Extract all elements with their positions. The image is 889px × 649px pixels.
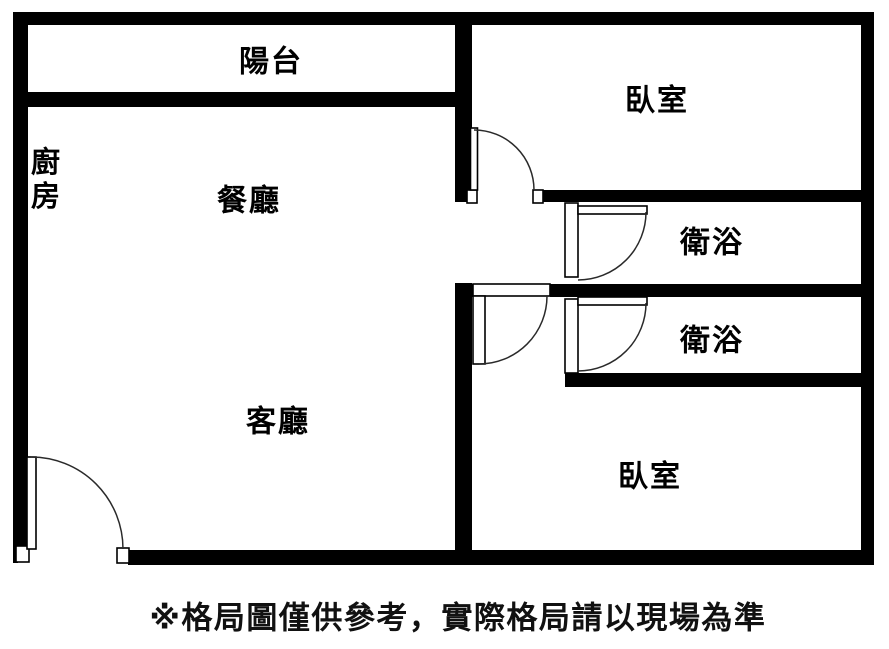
wall-top — [13, 12, 874, 25]
wall-bath-lower-bottom — [565, 373, 861, 387]
floorplan-canvas: 陽台 臥室 廚房 餐廳 衛浴 衛浴 客廳 臥室 ※格局圖僅供參考，實際格局請以現… — [0, 0, 889, 649]
room-label-bedroom-bottom: 臥室 — [618, 461, 682, 494]
floorplan-drawing — [0, 0, 889, 649]
room-label-bath-upper: 衛浴 — [680, 227, 744, 260]
door-jamb-icon — [467, 190, 477, 203]
wall-bedroom-top-bottom — [543, 190, 861, 202]
disclaimer-text: ※格局圖僅供參考，實際格局請以現場為準 — [150, 593, 767, 638]
door-jamb-icon — [533, 190, 543, 203]
wall-hallway-left-stub — [455, 284, 473, 297]
door-jamb-icon — [117, 548, 129, 563]
door-frame-icon — [565, 299, 578, 373]
room-label-kitchen: 廚房 — [31, 146, 65, 214]
door-arc-icon — [578, 303, 646, 371]
door-leaf-icon — [27, 457, 36, 549]
wall-right — [861, 12, 874, 565]
door-opening-icon — [473, 284, 550, 296]
door-frame-icon — [565, 203, 578, 277]
door-arc-icon — [479, 296, 547, 364]
door-leaf-icon — [578, 297, 647, 305]
door-leaf-icon — [578, 206, 647, 214]
door-bath-lower — [565, 297, 647, 373]
walls — [13, 12, 874, 565]
door-bath-upper — [565, 203, 647, 280]
door-leaf-icon — [471, 128, 478, 190]
wall-bath-divider — [550, 284, 861, 297]
door-arc-icon — [578, 212, 646, 280]
wall-bottom — [128, 550, 874, 565]
room-label-living: 客廳 — [246, 406, 310, 439]
room-label-bedroom-top: 臥室 — [625, 85, 689, 118]
door-arc-icon — [474, 130, 534, 190]
room-label-balcony: 陽台 — [239, 46, 303, 79]
wall-central-upper — [455, 12, 472, 202]
door-bedroom-top — [467, 128, 543, 203]
door-arc-icon — [31, 457, 123, 549]
wall-central-lower — [455, 283, 472, 550]
wall-balcony-bottom — [13, 92, 472, 107]
room-label-bath-lower: 衛浴 — [680, 325, 744, 358]
door-entrance — [16, 457, 129, 563]
door-leaf-icon — [473, 296, 485, 364]
door-hallway — [473, 284, 550, 364]
room-label-dining: 餐廳 — [217, 185, 281, 218]
